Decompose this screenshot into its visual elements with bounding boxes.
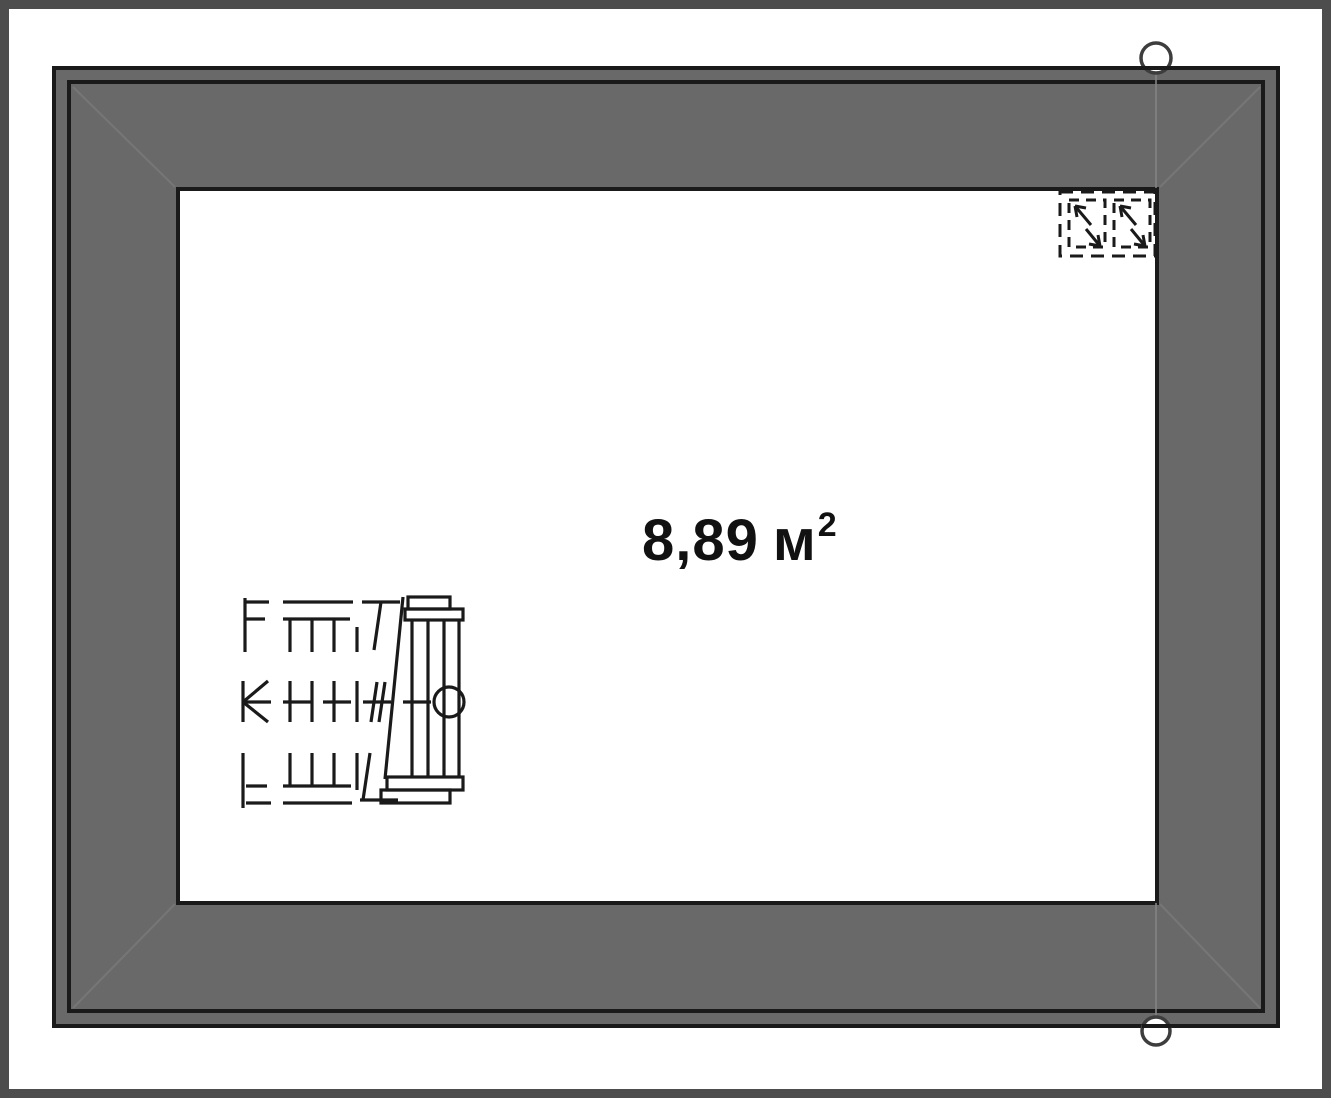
area-value: 8,89 [642,508,759,573]
floor-plan-drawing: 8,89м2 [0,0,1331,1098]
area-unit: м [773,508,817,573]
room-area-label: 8,89м2 [642,512,837,570]
area-superscript: 2 [818,506,838,544]
